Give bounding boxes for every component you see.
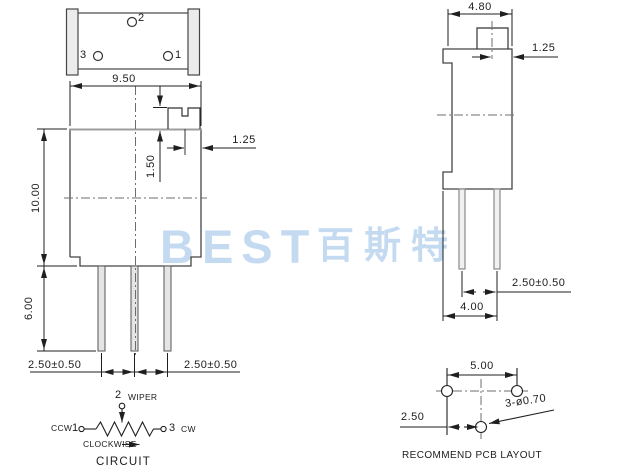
front-view-pin-left (98, 266, 105, 351)
top-view-pin2-hole (128, 18, 137, 27)
top-view-pin1-label: 1 (175, 50, 182, 61)
top-view-pin2-label: 2 (138, 13, 145, 24)
circuit-wiper-terminal (119, 403, 125, 409)
circuit-pin2-label: 2 (115, 390, 122, 401)
front-pin-length-dim: 6.00 (24, 297, 35, 320)
front-view-pin-right (164, 266, 171, 351)
pcb-hole-pitch-dim: 5.00 (452, 361, 512, 372)
circuit-ccw-label: CCW (51, 424, 72, 433)
circuit-pin3-label: 3 (169, 423, 176, 434)
front-view-screw (168, 108, 200, 129)
front-view (64, 86, 207, 357)
front-pin-pitch-right-dim: 2.50±0.50 (184, 360, 237, 371)
circuit-pin1-label: 1 (72, 423, 79, 434)
side-slot-offset-dim: 1.25 (532, 43, 555, 54)
top-view-left-flange (67, 9, 79, 75)
circuit-pin1-terminal (79, 426, 84, 431)
pcb-hole-offset-dim: 2.50 (401, 412, 424, 423)
top-view-pin3-hole (94, 52, 103, 61)
pcb-layout-title: RECOMMEND PCB LAYOUT (402, 450, 542, 461)
circuit-resistor-zigzag (96, 422, 154, 436)
circuit-title: CIRCUIT (96, 457, 151, 468)
top-view-right-flange (188, 9, 200, 75)
circuit-clockwise-label: CLOCKWISE (83, 440, 137, 449)
technical-drawing-page: BEST 百斯特 (0, 0, 622, 473)
front-screw-height-dim: 1.50 (146, 155, 157, 178)
front-view-pin-center (131, 266, 138, 351)
front-width-dim: 9.50 (100, 74, 148, 85)
side-base-width-dim: 4.00 (448, 302, 496, 313)
side-view-pin-front (459, 189, 465, 269)
circuit-wiper-label: WIPER (128, 393, 157, 402)
side-view-pin-back (494, 189, 500, 269)
top-view-pin3-label: 3 (80, 50, 87, 61)
side-pin-pitch-dim: 2.50±0.50 (512, 278, 565, 289)
front-slot-offset-dim: 1.25 (222, 135, 266, 146)
side-depth-dim: 4.80 (456, 2, 504, 13)
top-view (67, 9, 200, 75)
circuit-pin3-terminal (161, 426, 166, 431)
top-view-pin1-hole (164, 52, 173, 61)
pcb-hole-left (442, 386, 453, 397)
side-view-body-outline (443, 49, 512, 189)
front-view-dimensions (30, 81, 256, 377)
front-height-dim: 10.00 (31, 183, 42, 213)
front-pin-pitch-left-dim: 2.50±0.50 (28, 360, 81, 371)
circuit-cw-label: CW (181, 425, 196, 434)
side-view (437, 21, 517, 269)
side-view-dimensions (443, 9, 571, 321)
